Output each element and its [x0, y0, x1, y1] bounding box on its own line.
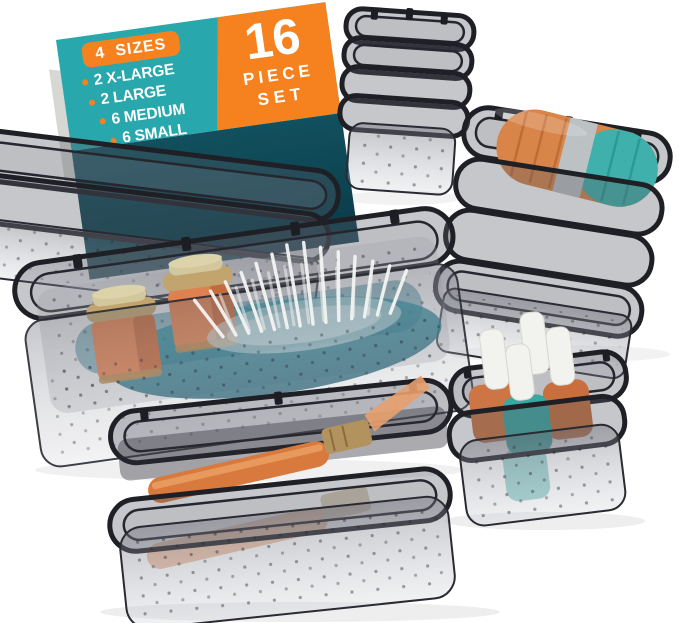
medium-bin-stack-bottom	[97, 372, 470, 623]
organizer-bins-scene	[0, 0, 679, 623]
product-image-canvas: 4 SIZES 2 X-LARGE 2 LARGE 6 MEDIUM 6 SMA…	[0, 0, 679, 623]
small-bin-stack-top	[335, 4, 476, 196]
